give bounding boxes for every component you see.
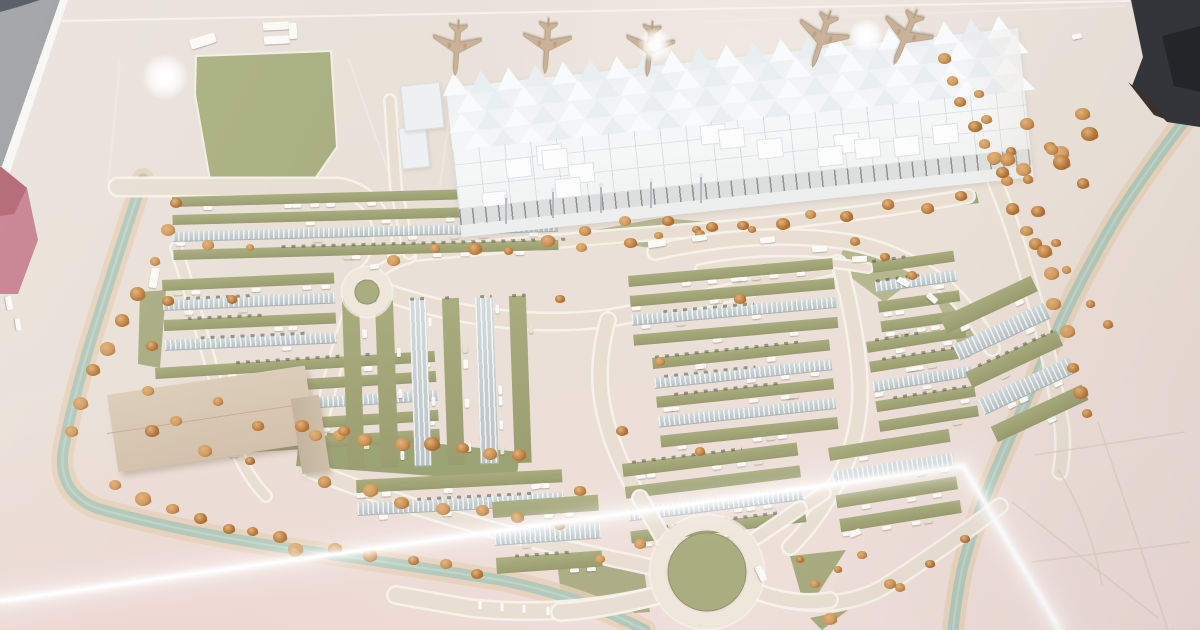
autumn-tree <box>333 430 346 441</box>
roof-spike <box>693 86 721 107</box>
parking-row <box>625 465 801 499</box>
parked-car <box>363 366 372 371</box>
model-vehicle <box>692 234 708 242</box>
parked-car <box>909 366 919 372</box>
road <box>655 237 992 348</box>
model-airplane <box>782 0 863 78</box>
parked-car <box>731 278 740 283</box>
parked-car <box>461 252 470 256</box>
road <box>640 498 668 546</box>
autumn-tree <box>938 53 951 64</box>
autumn-tree <box>142 386 155 397</box>
parked-car <box>512 516 521 521</box>
roof-spike <box>953 79 981 98</box>
hedge-line <box>200 332 309 340</box>
parked-car <box>895 310 904 315</box>
autumn-tree <box>884 579 897 590</box>
tail-fin <box>914 9 918 18</box>
parked-car <box>232 394 241 399</box>
parked-car <box>360 445 369 450</box>
engine-nacelle <box>896 28 902 35</box>
parked-car <box>191 290 200 295</box>
vitrine-edge-highlight <box>0 0 68 172</box>
carport-canopy-row <box>475 297 498 465</box>
autumn-tree <box>363 484 378 497</box>
autumn-tree <box>1067 363 1078 373</box>
road <box>756 493 824 538</box>
roof-spike <box>720 84 748 105</box>
autumn-tree <box>483 448 497 460</box>
parked-car <box>433 253 442 257</box>
hedge-line <box>515 550 574 557</box>
roof-spike <box>985 15 1013 40</box>
canopy-ribs <box>163 292 335 310</box>
hedge-line <box>177 436 298 446</box>
parked-car <box>713 338 722 343</box>
parked-car <box>1053 380 1063 388</box>
road <box>790 266 860 547</box>
roundabouts-layer <box>0 0 1200 630</box>
parked-car <box>274 326 283 331</box>
autumn-tree <box>511 512 525 523</box>
autumn-tree <box>247 527 258 536</box>
road-edge <box>600 320 668 546</box>
roof-spike <box>708 105 736 124</box>
road <box>560 596 655 612</box>
autumn-tree <box>706 222 719 233</box>
sketched-plan-line <box>1012 502 1158 618</box>
autumn-tree <box>245 457 254 465</box>
autumn-tree <box>1020 118 1034 130</box>
road-edge <box>560 596 655 612</box>
autumn-tree <box>907 271 917 280</box>
carport-canopy-row <box>872 366 973 393</box>
model-vehicle <box>189 32 217 50</box>
parking-row <box>836 476 959 508</box>
autumn-tree <box>979 139 990 149</box>
terminal-annex <box>400 82 445 132</box>
road-edge <box>395 196 968 256</box>
autumn-tree <box>1031 206 1045 218</box>
model-vehicle <box>812 245 827 252</box>
airplane-silhouette <box>623 23 676 79</box>
parked-car <box>482 199 491 203</box>
airplanes-layer <box>0 0 1200 630</box>
parked-car <box>922 384 932 390</box>
canopy-ribs <box>165 332 337 350</box>
roundabout-road <box>348 273 386 311</box>
autumn-tree <box>1044 142 1056 152</box>
autumn-tree <box>1020 226 1032 237</box>
autumn-tree <box>541 235 555 247</box>
grass-field <box>195 51 337 186</box>
parking-block <box>940 276 1094 454</box>
parked-car <box>896 348 906 354</box>
parked-car <box>326 203 335 207</box>
parking-row <box>342 301 365 469</box>
parked-car <box>923 519 933 525</box>
model-top-edge <box>62 1 1130 21</box>
roof-spike <box>638 92 666 113</box>
autumn-tree <box>748 226 757 233</box>
parked-car <box>185 397 194 402</box>
model-vehicle <box>289 23 298 39</box>
roof-spike <box>965 58 993 79</box>
parked-car <box>905 366 915 372</box>
autumn-tree <box>109 480 121 491</box>
autumn-tree <box>1051 239 1061 247</box>
parked-car <box>900 329 909 334</box>
parking-row <box>652 339 830 369</box>
autumn-tree <box>135 492 151 506</box>
road <box>936 58 1063 472</box>
green-island <box>563 218 772 253</box>
hedge-line <box>445 296 453 299</box>
parked-car <box>463 359 467 368</box>
light-streak-mid <box>0 466 1060 630</box>
parked-car <box>939 467 949 473</box>
autumn-tree <box>882 199 894 209</box>
light-mast <box>600 185 602 213</box>
model-vehicle <box>14 318 21 331</box>
autumn-tree <box>955 191 966 201</box>
roof-spike <box>980 76 1008 95</box>
canopy-ribs <box>475 297 498 464</box>
light-mast <box>700 175 702 203</box>
parking-block <box>866 326 980 440</box>
roof-spike <box>871 88 899 107</box>
parked-car <box>631 306 640 311</box>
roof-spike <box>658 49 686 74</box>
model-vehicle <box>264 35 290 44</box>
road <box>700 261 868 269</box>
roof-spike <box>666 89 694 110</box>
parked-car <box>367 202 376 206</box>
parking-block <box>492 495 604 586</box>
parked-car <box>943 340 953 346</box>
parking-row <box>622 443 798 477</box>
autumn-tree <box>73 397 89 410</box>
road <box>760 593 830 602</box>
airplane-silhouette <box>431 23 482 78</box>
autumn-tree <box>662 216 673 225</box>
parked-car <box>739 277 748 282</box>
parked-car <box>450 235 459 239</box>
parked-car <box>695 364 704 369</box>
parked-car <box>930 325 939 330</box>
parked-car <box>498 386 502 395</box>
roof-spike <box>829 72 857 93</box>
autumn-tree <box>1075 108 1090 121</box>
autumn-tree <box>960 535 969 543</box>
autumn-tree <box>574 486 585 495</box>
model-vehicle <box>896 276 910 287</box>
autumn-tree <box>338 426 350 436</box>
pink-table-edge <box>0 166 38 294</box>
light-streak-glow <box>0 466 1060 630</box>
parking-row <box>173 239 558 259</box>
canopy-ribs <box>631 297 836 325</box>
road <box>760 506 1000 603</box>
engine-nacelle <box>640 43 644 49</box>
road-edge <box>373 257 410 277</box>
parked-car <box>381 219 390 223</box>
autumn-tree <box>1060 325 1075 338</box>
parked-car <box>882 525 892 531</box>
canopy-ribs <box>875 270 958 292</box>
parking-block <box>652 339 839 455</box>
parked-car <box>785 394 794 399</box>
roof-spike <box>456 90 484 113</box>
parked-car <box>570 568 579 573</box>
parked-car <box>321 428 330 433</box>
autumn-tree <box>895 583 905 592</box>
roof-spike <box>619 73 647 96</box>
autumn-tree <box>512 449 527 461</box>
dark-object-overhang <box>1131 0 1200 127</box>
terminal-colonnade <box>459 149 1033 225</box>
parked-car <box>313 238 322 242</box>
parked-car <box>425 421 434 426</box>
parked-car <box>445 217 454 221</box>
hedge-line <box>282 237 572 248</box>
roof-spike <box>495 66 523 91</box>
autumn-tree <box>1046 298 1061 311</box>
autumn-tree <box>805 210 816 219</box>
parking-block <box>628 258 839 354</box>
roof-spike <box>822 32 850 57</box>
roof-spike <box>884 66 912 87</box>
autumn-tree <box>695 447 705 456</box>
roof-spike <box>549 60 577 85</box>
roof-tile <box>854 137 882 160</box>
parked-car <box>465 399 469 408</box>
light-streak-hot <box>0 466 1060 630</box>
autumn-tree <box>1073 386 1088 399</box>
autumn-tree <box>921 203 934 214</box>
dark-object-tip <box>1128 82 1170 121</box>
model-airplane <box>617 15 683 81</box>
roof-spike <box>681 108 709 127</box>
autumn-tree <box>65 426 78 437</box>
hedge-line <box>874 331 923 342</box>
hedge-line <box>655 341 799 359</box>
autumn-tree <box>1053 155 1071 170</box>
parked-car <box>302 285 311 290</box>
ceiling-light-glare <box>848 18 883 53</box>
parking-row <box>172 187 557 207</box>
roof-spike <box>856 69 884 90</box>
tail-fin <box>548 18 549 27</box>
parked-car <box>229 453 238 458</box>
hedge-line <box>343 300 353 303</box>
hedge-line <box>417 492 536 501</box>
canopy-ribs <box>658 398 836 427</box>
canopy-ribs <box>872 366 972 392</box>
parked-car <box>653 540 662 545</box>
model-vehicle <box>852 256 867 263</box>
green-island <box>838 236 936 302</box>
autumn-tree <box>1006 203 1019 214</box>
hedge-line <box>187 314 262 320</box>
autumn-tree <box>947 76 958 85</box>
roof-spike <box>775 78 803 99</box>
autumn-tree <box>1044 267 1059 280</box>
parked-car <box>322 284 331 289</box>
parked-car <box>479 234 488 238</box>
roof-tile <box>718 127 746 150</box>
carport-canopy-row <box>173 222 558 242</box>
parked-car <box>565 513 574 518</box>
hedge-line <box>977 330 1054 368</box>
autumn-tree <box>1000 153 1015 166</box>
green-island <box>392 192 979 261</box>
roof-spike <box>767 37 795 62</box>
green-island <box>936 292 992 352</box>
roof-spike <box>686 46 714 71</box>
parking-row <box>155 351 435 379</box>
parking-block <box>342 295 548 468</box>
parking-row <box>828 429 951 461</box>
parked-car <box>670 406 679 411</box>
roof-spike <box>626 114 654 133</box>
hedge-line <box>664 365 756 378</box>
roof-spike <box>572 119 600 138</box>
parked-car <box>916 327 925 332</box>
parked-car <box>344 255 353 259</box>
autumn-tree <box>198 445 213 458</box>
roof-spike <box>545 122 573 141</box>
roof-spike <box>537 82 565 105</box>
road <box>390 100 409 253</box>
road-edge <box>390 100 409 253</box>
sketched-plan-line <box>1098 422 1168 630</box>
ceiling-light-glare <box>637 27 672 62</box>
engine-nacelle <box>553 41 557 47</box>
roof-tile <box>505 156 533 179</box>
parking-block <box>155 351 440 466</box>
parked-car <box>927 363 937 369</box>
parked-car <box>522 544 531 549</box>
parking-row <box>492 495 599 518</box>
road <box>373 257 410 277</box>
road-edge <box>936 58 1063 472</box>
road <box>396 595 655 611</box>
parked-car <box>528 507 537 512</box>
roof-spike <box>701 65 729 88</box>
parked-car <box>500 445 504 454</box>
tail-fin <box>828 11 831 20</box>
parked-car <box>874 392 884 398</box>
roof-spike <box>810 53 838 76</box>
parked-car <box>714 299 723 304</box>
model-vehicle <box>148 267 159 288</box>
roof-spike <box>903 23 931 48</box>
autumn-tree <box>440 559 452 569</box>
parking-row <box>172 204 557 224</box>
parked-car <box>646 473 655 478</box>
autumn-tree <box>289 546 301 557</box>
parked-car <box>790 393 799 398</box>
roof-spike <box>747 81 775 102</box>
autumn-tree <box>1103 320 1114 329</box>
parking-block <box>622 443 808 554</box>
parked-car <box>900 329 909 334</box>
parked-car <box>1000 372 1010 380</box>
parked-car <box>174 291 183 296</box>
roof-spike <box>899 85 927 104</box>
hedge-line <box>632 447 742 463</box>
road-edge <box>756 493 824 538</box>
terminal-roof-grid <box>452 90 1030 210</box>
parked-car <box>859 456 869 462</box>
autumn-tree <box>968 121 981 132</box>
carport-canopy-row <box>157 390 437 418</box>
parking-row <box>159 410 439 438</box>
terminal-annex <box>398 125 430 170</box>
autumn-tree <box>776 218 790 230</box>
parked-car <box>400 451 404 460</box>
autumn-tree <box>954 97 966 107</box>
parked-car <box>463 344 467 353</box>
parked-car <box>540 483 549 488</box>
parking-row <box>356 469 562 493</box>
hedge-line <box>236 353 374 364</box>
airplane-silhouette <box>870 4 939 75</box>
model-vehicle <box>760 236 776 244</box>
parked-car <box>777 434 786 439</box>
roof-spike <box>926 82 954 101</box>
autumn-tree <box>1086 300 1096 308</box>
autumn-tree <box>130 287 146 300</box>
model-airplane <box>425 15 489 79</box>
parked-car <box>305 221 314 225</box>
ceiling-light-glare <box>141 53 189 101</box>
roof-spike <box>958 17 986 42</box>
parked-car <box>252 287 261 292</box>
autumn-tree <box>170 198 183 209</box>
roof-spike <box>891 45 919 68</box>
autumn-tree <box>823 613 838 626</box>
road-edge <box>118 187 383 274</box>
road-edge <box>310 470 652 567</box>
parked-car <box>770 274 779 279</box>
autumn-tree <box>619 216 631 226</box>
roundabout-road <box>658 523 756 621</box>
parked-car <box>641 325 650 330</box>
ground-features-layer <box>0 0 1200 630</box>
parked-car <box>408 236 417 240</box>
parked-car <box>310 203 319 207</box>
dark-object-shadow <box>1162 26 1200 92</box>
parking-row <box>660 417 838 447</box>
autumn-tree <box>408 556 418 565</box>
terminal-building <box>446 28 1034 237</box>
parking-row <box>164 312 336 331</box>
parked-car <box>466 443 470 452</box>
autumn-tree <box>1062 266 1071 274</box>
hedge-line <box>892 384 972 400</box>
engine-nacelle <box>463 43 467 49</box>
autumn-tree <box>86 364 100 376</box>
autumn-tree <box>456 443 469 454</box>
parking-block <box>172 187 559 267</box>
model-vehicle <box>1072 33 1083 40</box>
roof-spike <box>918 42 946 65</box>
parking-block <box>872 251 964 342</box>
engine-nacelle <box>828 36 833 43</box>
parked-car <box>466 443 470 452</box>
